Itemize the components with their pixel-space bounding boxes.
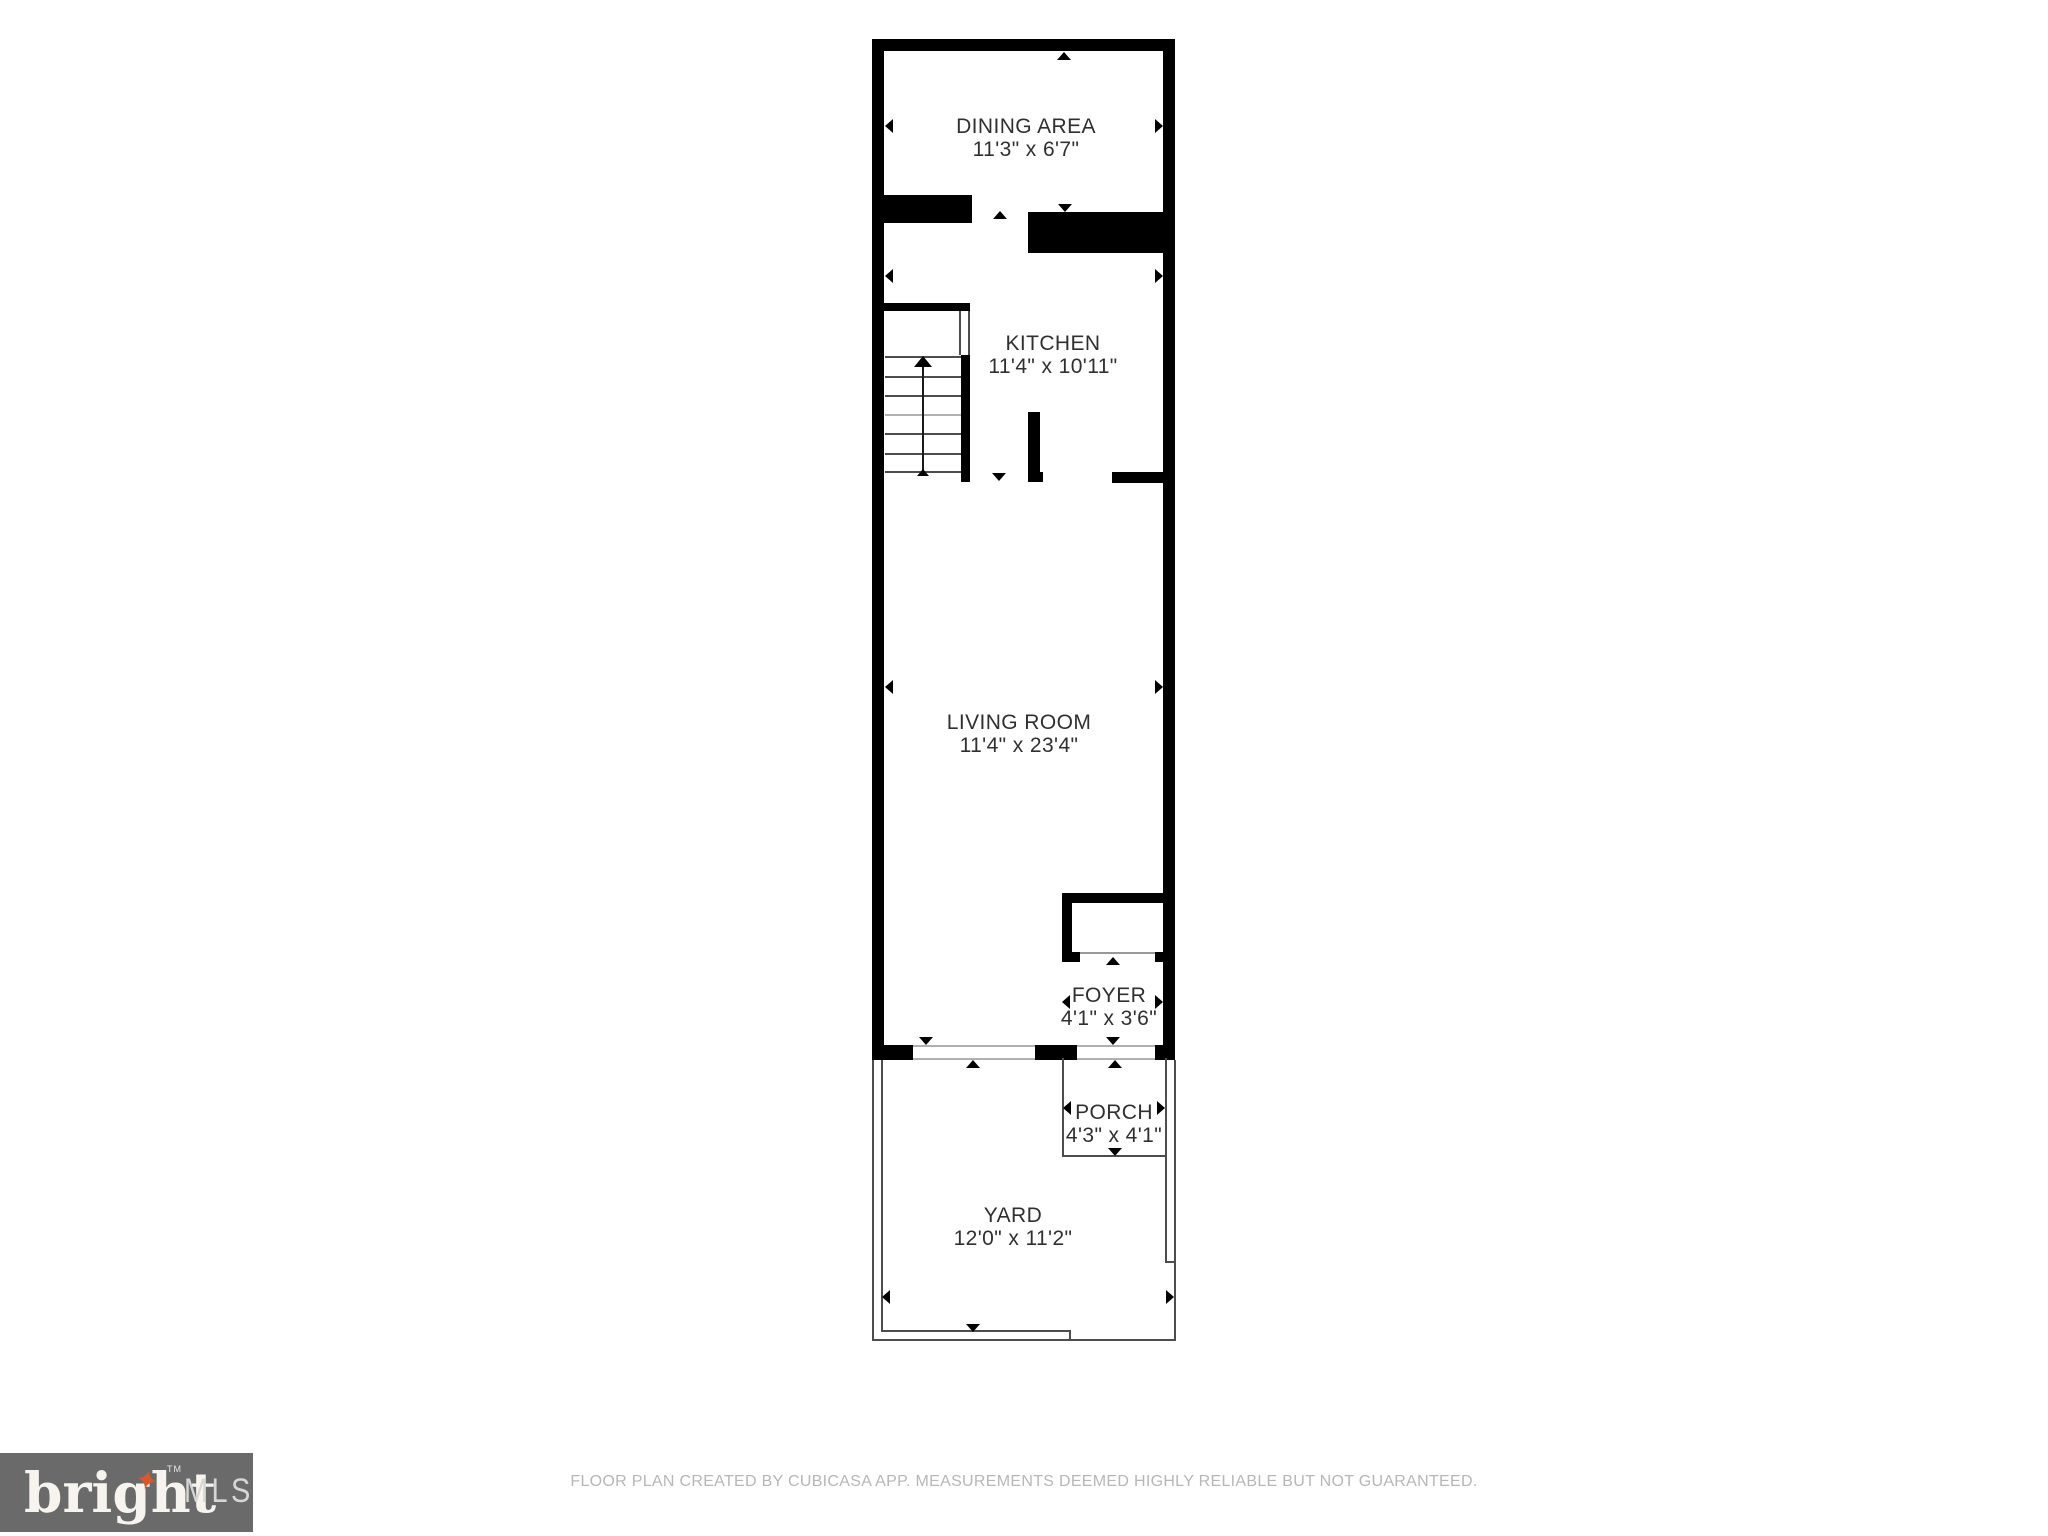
stairs-up-arrow-tail-icon <box>917 469 929 476</box>
yard-inner-right-line <box>1165 1058 1167 1263</box>
measure-arrow-right-icon <box>1166 1290 1174 1304</box>
measure-arrow-right-icon <box>1155 269 1163 283</box>
stairs-up-arrow-icon <box>914 356 932 367</box>
threshold-line <box>913 1045 1035 1047</box>
room-name: LIVING ROOM <box>947 711 1091 734</box>
room-label-kitchen: KITCHEN 11'4" x 10'11" <box>988 332 1117 378</box>
entry-nook-top-wall <box>1062 893 1163 903</box>
room-dims: 4'1" x 3'6" <box>1061 1007 1157 1030</box>
wall-dining-kitchen <box>872 195 972 223</box>
measure-arrow-left-icon <box>885 269 893 283</box>
room-label-dining-area: DINING AREA 11'3" x 6'7" <box>956 115 1096 161</box>
yard-outer-left-line <box>872 1060 874 1341</box>
room-name: KITCHEN <box>988 332 1117 355</box>
yard-inner-bottom-connector <box>1069 1330 1071 1341</box>
room-dims: 11'4" x 10'11" <box>988 355 1117 378</box>
wall-kitchen-block <box>1028 212 1163 253</box>
entry-nook-stub-left <box>1062 952 1080 962</box>
logo-mls-text: MLS <box>184 1474 254 1508</box>
measure-arrow-down-icon <box>1108 1148 1122 1156</box>
room-name: PORCH <box>1066 1101 1162 1124</box>
room-label-yard: YARD 12'0" x 11'2" <box>954 1204 1073 1250</box>
stairs-landing-line-right <box>968 311 970 355</box>
measure-arrow-up-icon <box>1057 52 1071 60</box>
measure-arrow-left-icon <box>885 680 893 694</box>
wall-outer-top <box>872 39 1175 51</box>
room-dims: 4'3" x 4'1" <box>1066 1124 1162 1147</box>
room-dims: 11'4" x 23'4" <box>947 734 1091 757</box>
measure-arrow-up-icon <box>993 211 1007 219</box>
yard-outer-bottom-line <box>872 1339 1176 1341</box>
room-dims: 12'0" x 11'2" <box>954 1227 1073 1250</box>
wall-outer-right <box>1163 39 1175 1060</box>
yard-inner-right-connector <box>1165 1261 1176 1263</box>
measure-arrow-down-icon <box>1058 204 1072 212</box>
yard-outer-right-line <box>1174 1060 1176 1341</box>
measure-arrow-up-icon <box>1106 957 1120 965</box>
room-dims: 11'3" x 6'7" <box>956 138 1096 161</box>
wall-bottom-segment-left <box>872 1045 913 1060</box>
threshold-line <box>1077 1045 1155 1047</box>
stairs-side-wall <box>961 355 970 482</box>
disclaimer-text: FLOOR PLAN CREATED BY CUBICASA APP. MEAS… <box>0 1473 2048 1491</box>
room-label-porch: PORCH 4'3" x 4'1" <box>1066 1101 1162 1147</box>
wall-bottom-segment-middle <box>1035 1045 1077 1060</box>
measure-arrow-up-icon <box>966 1060 980 1068</box>
measure-arrow-down-icon <box>1106 1037 1120 1045</box>
measure-arrow-left-icon <box>882 1290 890 1304</box>
room-name: DINING AREA <box>956 115 1096 138</box>
floor-plan: DINING AREA 11'3" x 6'7" KITCHEN 11'4" x… <box>0 0 2048 1536</box>
measure-arrow-right-icon <box>1155 119 1163 133</box>
floor-plan-page: DINING AREA 11'3" x 6'7" KITCHEN 11'4" x… <box>0 0 2048 1536</box>
stairs <box>872 303 970 483</box>
stairs-direction-line <box>922 360 924 474</box>
wall-kitchen-bottom-stub <box>1112 472 1163 483</box>
measure-arrow-down-icon <box>992 473 1006 481</box>
bright-mls-logo: bright ✦ TM MLS <box>0 1453 253 1532</box>
stairs-landing-line-left <box>959 311 961 355</box>
entry-door-line <box>1080 952 1155 954</box>
wall-outer-left <box>872 39 884 1060</box>
measure-arrow-up-icon <box>1108 1060 1122 1068</box>
measure-arrow-right-icon <box>1155 680 1163 694</box>
measure-arrow-down-icon <box>919 1037 933 1045</box>
measure-arrow-left-icon <box>885 119 893 133</box>
room-label-living-room: LIVING ROOM 11'4" x 23'4" <box>947 711 1091 757</box>
room-label-foyer: FOYER 4'1" x 3'6" <box>1061 984 1157 1030</box>
stairs-top-wall <box>872 303 970 311</box>
room-name: FOYER <box>1061 984 1157 1007</box>
measure-arrow-down-icon <box>966 1324 980 1332</box>
wall-kitchen-stub-foot <box>1028 472 1043 482</box>
room-name: YARD <box>954 1204 1073 1227</box>
logo-trademark-text: TM <box>167 1464 182 1474</box>
entry-nook-stub-right <box>1155 952 1163 962</box>
